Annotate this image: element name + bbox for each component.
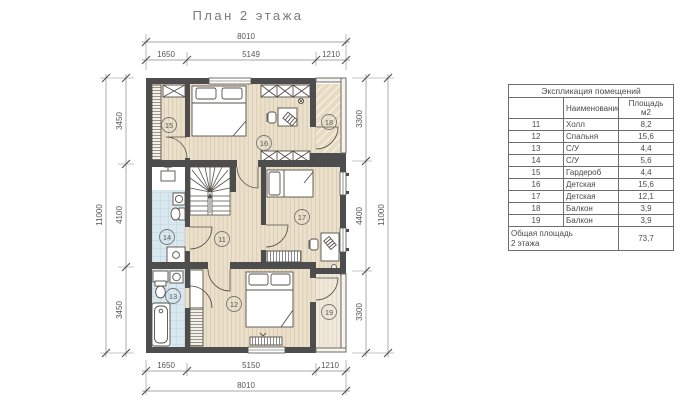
window — [340, 172, 349, 195]
room-area: 15,6 — [619, 131, 674, 143]
legend-row: 16Детская15,6 — [509, 179, 674, 191]
wall-interior — [185, 308, 190, 347]
legend-row: 13С/У4,4 — [509, 143, 674, 155]
room-area: 5,6 — [619, 155, 674, 167]
wall-interior — [261, 167, 266, 225]
room-area: 12,1 — [619, 191, 674, 203]
wall-exterior-top — [251, 78, 316, 84]
dim-left-seg1: 3450 — [115, 112, 124, 130]
dim-top-seg2: 5149 — [242, 50, 260, 59]
legend-footer-label: Общая площадь 2 этажа — [509, 227, 619, 251]
toilet-icon — [155, 281, 166, 298]
dim-bottom-seg3: 1210 — [321, 361, 339, 370]
room-name: Балкон — [564, 203, 619, 215]
railing — [316, 348, 346, 352]
sink-icon — [170, 271, 183, 283]
room-num: 18 — [509, 203, 564, 215]
room-name: С/У — [564, 143, 619, 155]
toilet-icon — [171, 208, 185, 220]
dim-top-total: 8010 — [237, 32, 255, 41]
wall-interior — [261, 250, 266, 262]
window — [248, 347, 285, 353]
counter-icon — [153, 271, 168, 282]
double-bed-icon — [192, 86, 246, 136]
legend-col-num — [509, 98, 564, 119]
wall-interior — [258, 160, 340, 167]
dim-right-seg2: 4400 — [355, 207, 364, 225]
room-num: 12 — [509, 131, 564, 143]
room-num: 16 — [509, 179, 564, 191]
single-bed-icon — [267, 170, 313, 197]
wall-interior — [310, 268, 316, 278]
floorplan-page: План 2 этажа — [0, 0, 700, 410]
dim-bottom-seg2: 5150 — [242, 361, 260, 370]
legend-title: Экспликация помещений — [509, 85, 674, 98]
wall-exterior-top — [146, 78, 209, 84]
room-legend-table: Экспликация помещений Наименование Площа… — [508, 84, 674, 251]
closet-icon — [190, 270, 203, 346]
bathtub-icon — [152, 303, 170, 346]
room-name: Холл — [564, 119, 619, 131]
svg-text:17: 17 — [298, 213, 306, 222]
legend-footer-line1: Общая площадь — [511, 229, 616, 239]
wall-interior — [310, 84, 316, 127]
legend-row: 14С/У5,6 — [509, 155, 674, 167]
room-legend: Экспликация помещений Наименование Площа… — [508, 84, 674, 251]
room-num: 11 — [509, 119, 564, 131]
legend-row: 17Детская12,1 — [509, 191, 674, 203]
legend-col-area-line2: м2 — [621, 108, 671, 117]
room-area: 8,2 — [619, 119, 674, 131]
wall-exterior-bottom — [146, 347, 248, 353]
dim-bottom-seg1: 1650 — [157, 361, 175, 370]
wardrobe-icon — [163, 85, 185, 97]
wall-interior — [185, 84, 190, 137]
wall-interior — [185, 251, 190, 288]
room-num: 13 — [509, 143, 564, 155]
legend-col-area: Площадь м2 — [619, 98, 674, 119]
svg-text:12: 12 — [230, 300, 238, 309]
room-name: Балкон — [564, 215, 619, 227]
wall-interior — [185, 158, 190, 227]
room-area: 4,4 — [619, 143, 674, 155]
window — [340, 228, 349, 252]
legend-footer-area: 73,7 — [619, 227, 674, 251]
legend-row: 19Балкон3,9 — [509, 215, 674, 227]
shelving-icon — [152, 85, 161, 160]
dim-left-seg3: 3450 — [115, 301, 124, 319]
svg-text:19: 19 — [325, 308, 333, 317]
svg-text:14: 14 — [163, 233, 171, 242]
room-name: Детская — [564, 191, 619, 203]
wardrobe-icon — [261, 85, 310, 97]
washing-machine-icon — [167, 247, 185, 263]
radiator-icon — [250, 337, 282, 345]
wall-stair — [230, 167, 236, 192]
legend-col-name: Наименование — [564, 98, 619, 119]
room-num: 15 — [509, 167, 564, 179]
dim-right-seg3: 3300 — [355, 303, 364, 321]
legend-col-area-line1: Площадь — [621, 99, 671, 108]
svg-text:13: 13 — [169, 292, 177, 301]
room-num: 17 — [509, 191, 564, 203]
wall-interior — [152, 160, 237, 167]
room-num: 19 — [509, 215, 564, 227]
railing — [341, 274, 346, 352]
dim-top-seg3: 1210 — [322, 50, 340, 59]
svg-text:18: 18 — [325, 118, 333, 127]
svg-text:11: 11 — [218, 235, 226, 244]
legend-row: 11Холл8,2 — [509, 119, 674, 131]
dim-left-total: 11000 — [95, 204, 104, 226]
room-area: 4,4 — [619, 167, 674, 179]
dim-bottom-total: 8010 — [237, 381, 255, 390]
railing — [341, 78, 346, 153]
sink-icon — [173, 193, 185, 205]
dim-left-seg2: 4100 — [115, 206, 124, 224]
chair-icon — [309, 239, 318, 250]
room-area: 15,6 — [619, 179, 674, 191]
double-bed-icon — [246, 272, 293, 327]
room-area: 3,9 — [619, 215, 674, 227]
dim-right-total: 11000 — [377, 204, 386, 226]
legend-row: 12Спальня15,6 — [509, 131, 674, 143]
window — [209, 78, 251, 84]
wall-interior — [146, 262, 208, 269]
legend-footer: Общая площадь 2 этажа 73,7 — [509, 227, 674, 251]
legend-row: 15Гардероб4,4 — [509, 167, 674, 179]
legend-footer-line2: 2 этажа — [511, 239, 616, 249]
wall-interior — [310, 302, 316, 353]
wall-balcony18-bottom — [310, 153, 346, 161]
room-name: Детская — [564, 179, 619, 191]
legend-row: 18Балкон3,9 — [509, 203, 674, 215]
svg-text:15: 15 — [165, 121, 173, 130]
room-name: С/У — [564, 155, 619, 167]
wall-exterior-right — [340, 195, 346, 228]
chair-icon — [267, 112, 276, 123]
room-area: 3,9 — [619, 203, 674, 215]
wall-exterior-left — [146, 78, 152, 353]
radiator-icon — [266, 251, 301, 262]
room-name: Спальня — [564, 131, 619, 143]
room-num: 14 — [509, 155, 564, 167]
dim-top-seg1: 1650 — [157, 50, 175, 59]
wall-interior — [230, 262, 316, 269]
svg-text:16: 16 — [260, 139, 268, 148]
dim-right-seg1: 3300 — [355, 110, 364, 128]
room-name: Гардероб — [564, 167, 619, 179]
